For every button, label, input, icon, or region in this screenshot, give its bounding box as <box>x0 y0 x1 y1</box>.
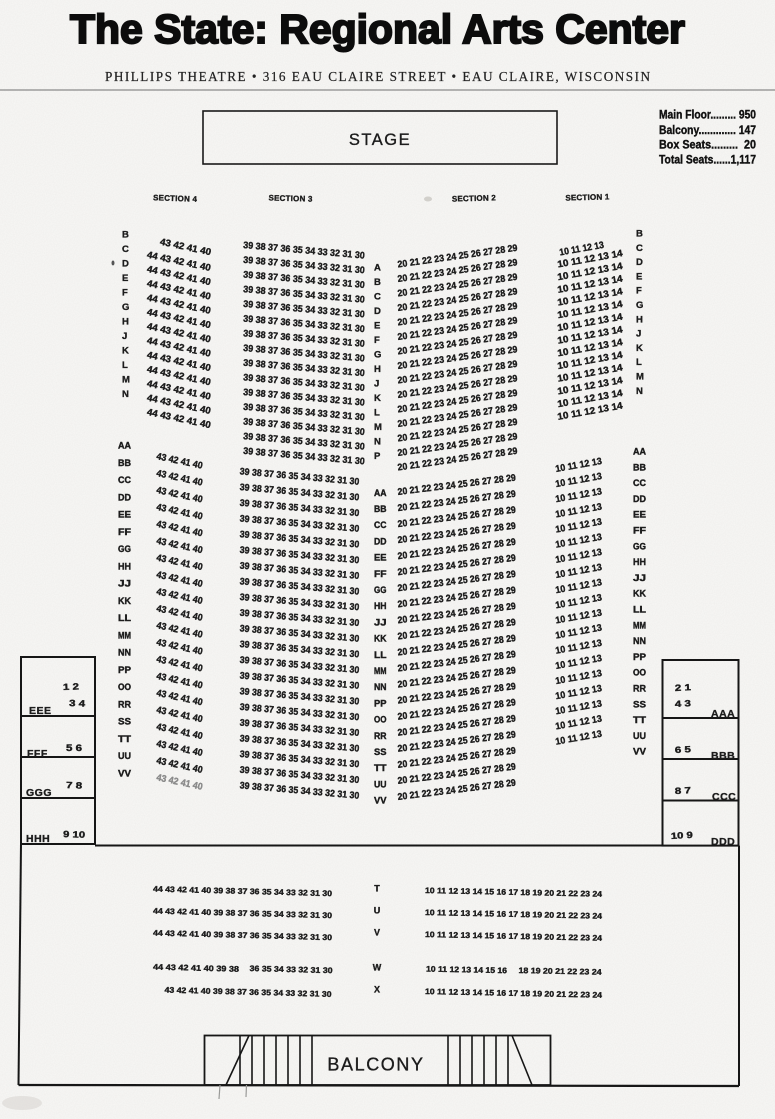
svg-text:K: K <box>636 343 643 354</box>
svg-text:C: C <box>122 244 129 255</box>
svg-text:G: G <box>636 300 643 311</box>
svg-text:HH: HH <box>118 561 131 571</box>
svg-text:SECTION 1: SECTION 1 <box>565 192 610 202</box>
svg-text:W: W <box>373 963 382 973</box>
svg-text:B: B <box>636 229 643 240</box>
svg-text:The State: Regional Arts Cente: The State: Regional Arts Center <box>70 6 685 52</box>
svg-text:N: N <box>374 437 381 448</box>
svg-text:2 1: 2 1 <box>675 682 692 693</box>
svg-text:HH: HH <box>374 601 387 611</box>
svg-text:UU: UU <box>633 731 646 741</box>
svg-text:10 11 12 13 14 15 16: 10 11 12 13 14 15 16 <box>426 965 508 976</box>
svg-text:4 3: 4 3 <box>675 698 692 709</box>
svg-text:J: J <box>636 329 641 340</box>
svg-text:X: X <box>374 985 380 995</box>
svg-text:SECTION 3: SECTION 3 <box>268 193 313 203</box>
svg-text:OO: OO <box>374 715 387 725</box>
svg-text:UU: UU <box>374 779 387 789</box>
svg-text:SS: SS <box>374 747 387 757</box>
svg-text:STAGE: STAGE <box>349 131 411 149</box>
svg-text:JJ: JJ <box>633 573 646 583</box>
svg-text:U: U <box>374 906 381 916</box>
svg-text:Balcony............. 147: Balcony............. 147 <box>659 123 756 137</box>
svg-text:D: D <box>636 257 643 268</box>
svg-text:K: K <box>122 346 129 357</box>
svg-text:LL: LL <box>633 605 647 615</box>
svg-text:10 9: 10 9 <box>671 830 693 841</box>
svg-text:EE: EE <box>118 510 131 520</box>
svg-text:1 2: 1 2 <box>63 681 79 692</box>
svg-text:KK: KK <box>633 589 646 599</box>
svg-text:N: N <box>636 386 643 397</box>
svg-text:FF: FF <box>118 527 132 537</box>
svg-text:CC: CC <box>633 478 646 488</box>
svg-text:LL: LL <box>118 613 132 623</box>
svg-text:CCC: CCC <box>712 791 736 803</box>
svg-text:G: G <box>374 350 381 361</box>
svg-text:B: B <box>122 230 129 241</box>
svg-text:NN: NN <box>118 648 131 658</box>
svg-text:PP: PP <box>374 698 387 708</box>
svg-text:FF: FF <box>633 526 647 536</box>
svg-text:VV: VV <box>374 796 387 806</box>
svg-text:M: M <box>374 422 382 433</box>
svg-text:P: P <box>374 451 381 462</box>
svg-text:SS: SS <box>118 717 131 727</box>
svg-text:AA: AA <box>374 488 387 498</box>
svg-text:EE: EE <box>374 553 387 563</box>
svg-text:L: L <box>122 360 128 371</box>
svg-text:T: T <box>374 884 380 894</box>
svg-text:VV: VV <box>118 768 131 778</box>
svg-text:C: C <box>374 292 381 303</box>
svg-text:A: A <box>374 263 381 274</box>
svg-text:SECTION 2: SECTION 2 <box>452 193 497 203</box>
svg-text:7 8: 7 8 <box>66 780 82 791</box>
svg-text:UU: UU <box>118 751 131 761</box>
svg-text:MM: MM <box>118 630 131 640</box>
svg-text:FF: FF <box>374 569 387 579</box>
svg-text:C: C <box>636 243 643 254</box>
svg-text:H: H <box>636 314 643 325</box>
svg-text:EE: EE <box>633 510 646 520</box>
svg-text:DD: DD <box>374 536 387 546</box>
svg-text:E: E <box>122 273 128 284</box>
svg-text:DD: DD <box>118 492 131 502</box>
svg-text:M: M <box>636 372 644 383</box>
svg-text:MM: MM <box>374 666 387 676</box>
svg-text:OO: OO <box>633 668 646 678</box>
svg-text:N: N <box>122 389 129 400</box>
svg-text:5 6: 5 6 <box>66 743 82 753</box>
svg-text:H: H <box>374 364 381 375</box>
svg-text:F: F <box>122 288 128 299</box>
svg-text:M: M <box>122 375 130 386</box>
svg-text:J: J <box>122 331 127 342</box>
svg-text:PHILLIPS THEATRE • 316 EAU CLA: PHILLIPS THEATRE • 316 EAU CLAIRE STREET… <box>105 69 650 84</box>
svg-text:CC: CC <box>118 475 131 485</box>
svg-text:NN: NN <box>374 682 387 692</box>
svg-text:Box Seats......... 20: Box Seats......... 20 <box>659 138 756 152</box>
svg-text:OO: OO <box>118 682 131 692</box>
svg-text:RR: RR <box>374 731 387 741</box>
svg-text:K: K <box>374 393 381 404</box>
svg-text:HHH: HHH <box>26 833 50 845</box>
svg-text:SECTION 4: SECTION 4 <box>153 193 198 204</box>
svg-text:CC: CC <box>374 520 387 530</box>
svg-text:V: V <box>374 928 380 938</box>
svg-text:DD: DD <box>633 494 646 504</box>
svg-text:E: E <box>374 321 380 332</box>
svg-text:E: E <box>636 271 642 282</box>
svg-text:JJ: JJ <box>118 579 131 589</box>
svg-text:F: F <box>374 335 380 346</box>
svg-text:GG: GG <box>633 541 646 551</box>
svg-text:SS: SS <box>633 699 646 709</box>
svg-text:JJ: JJ <box>374 617 387 627</box>
svg-text:3 4: 3 4 <box>69 698 85 709</box>
svg-text:B: B <box>374 277 381 288</box>
svg-text:L: L <box>636 357 642 368</box>
svg-text:6 5: 6 5 <box>675 744 692 755</box>
svg-text:D: D <box>374 306 381 317</box>
svg-text:AA: AA <box>118 441 131 451</box>
svg-text:HH: HH <box>633 557 646 567</box>
svg-text:AAA: AAA <box>711 708 735 720</box>
svg-text:TT: TT <box>633 715 647 725</box>
svg-text:FFF: FFF <box>27 748 48 760</box>
svg-text:GGG: GGG <box>26 787 52 799</box>
svg-text:8 7: 8 7 <box>675 785 692 796</box>
svg-text:MM: MM <box>633 620 646 630</box>
svg-text:9 10: 9 10 <box>63 829 85 840</box>
svg-text:Total Seats......1,117: Total Seats......1,117 <box>659 153 756 167</box>
svg-text:RR: RR <box>118 699 131 709</box>
svg-text:GG: GG <box>374 585 387 595</box>
svg-text:F: F <box>636 286 642 297</box>
svg-text:LL: LL <box>374 650 387 660</box>
svg-text:G: G <box>122 302 129 313</box>
svg-text:BALCONY: BALCONY <box>327 1055 424 1075</box>
svg-text:GG: GG <box>118 544 131 554</box>
svg-text:H: H <box>122 317 129 328</box>
svg-text:D: D <box>122 259 129 270</box>
svg-text:RR: RR <box>633 684 646 694</box>
svg-text:BB: BB <box>118 458 131 468</box>
svg-text:18 19 20 21 22 23 24: 18 19 20 21 22 23 24 <box>518 966 602 977</box>
svg-text:PP: PP <box>633 652 646 662</box>
svg-text:TT: TT <box>374 763 387 773</box>
svg-text:TT: TT <box>118 734 132 744</box>
svg-text:BBB: BBB <box>711 750 735 762</box>
svg-text:L: L <box>374 408 380 419</box>
svg-text:Main Floor......... 950: Main Floor......... 950 <box>659 108 756 122</box>
svg-text:KK: KK <box>118 596 131 606</box>
svg-text:EEE: EEE <box>29 705 52 717</box>
svg-text:BB: BB <box>374 504 387 514</box>
svg-text:DDD: DDD <box>711 836 735 848</box>
svg-text:PP: PP <box>118 665 131 675</box>
svg-text:VV: VV <box>633 747 646 757</box>
svg-text:KK: KK <box>374 634 387 644</box>
svg-text:AA: AA <box>633 447 646 457</box>
svg-text:J: J <box>374 379 379 390</box>
svg-text:BB: BB <box>633 462 646 472</box>
svg-text:NN: NN <box>633 636 646 646</box>
